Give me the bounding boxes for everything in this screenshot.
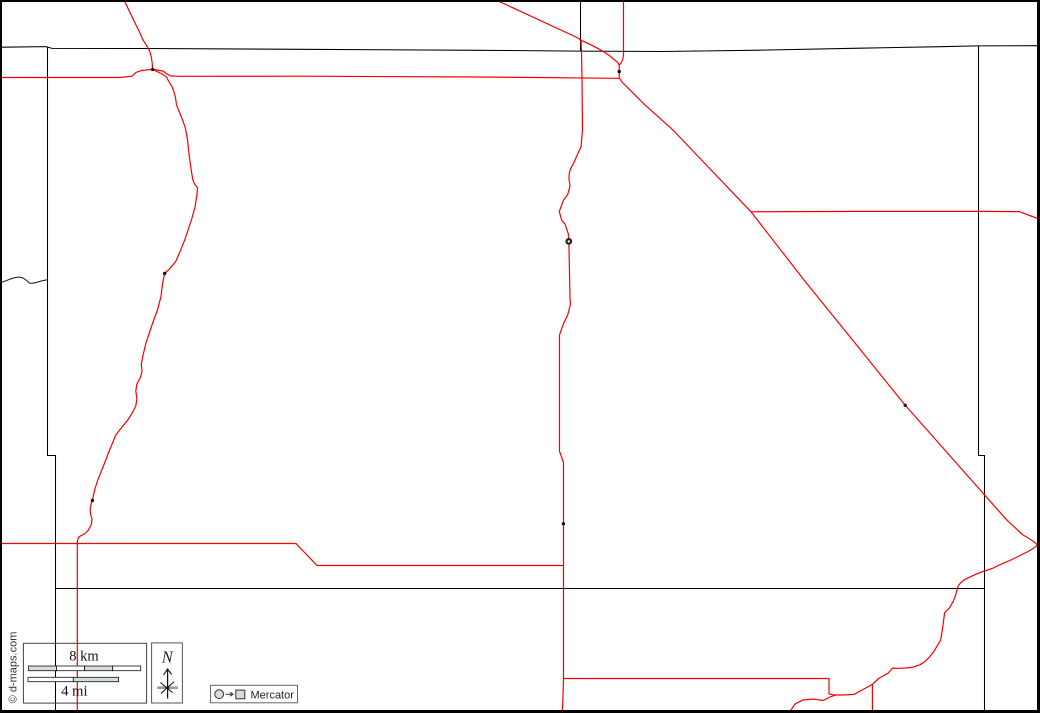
- svg-text:© d-maps.com: © d-maps.com: [8, 632, 20, 704]
- svg-text:8 km: 8 km: [69, 649, 99, 665]
- svg-text:4 mi: 4 mi: [61, 684, 87, 700]
- svg-text:Mercator: Mercator: [251, 689, 295, 701]
- svg-text:N: N: [161, 647, 174, 666]
